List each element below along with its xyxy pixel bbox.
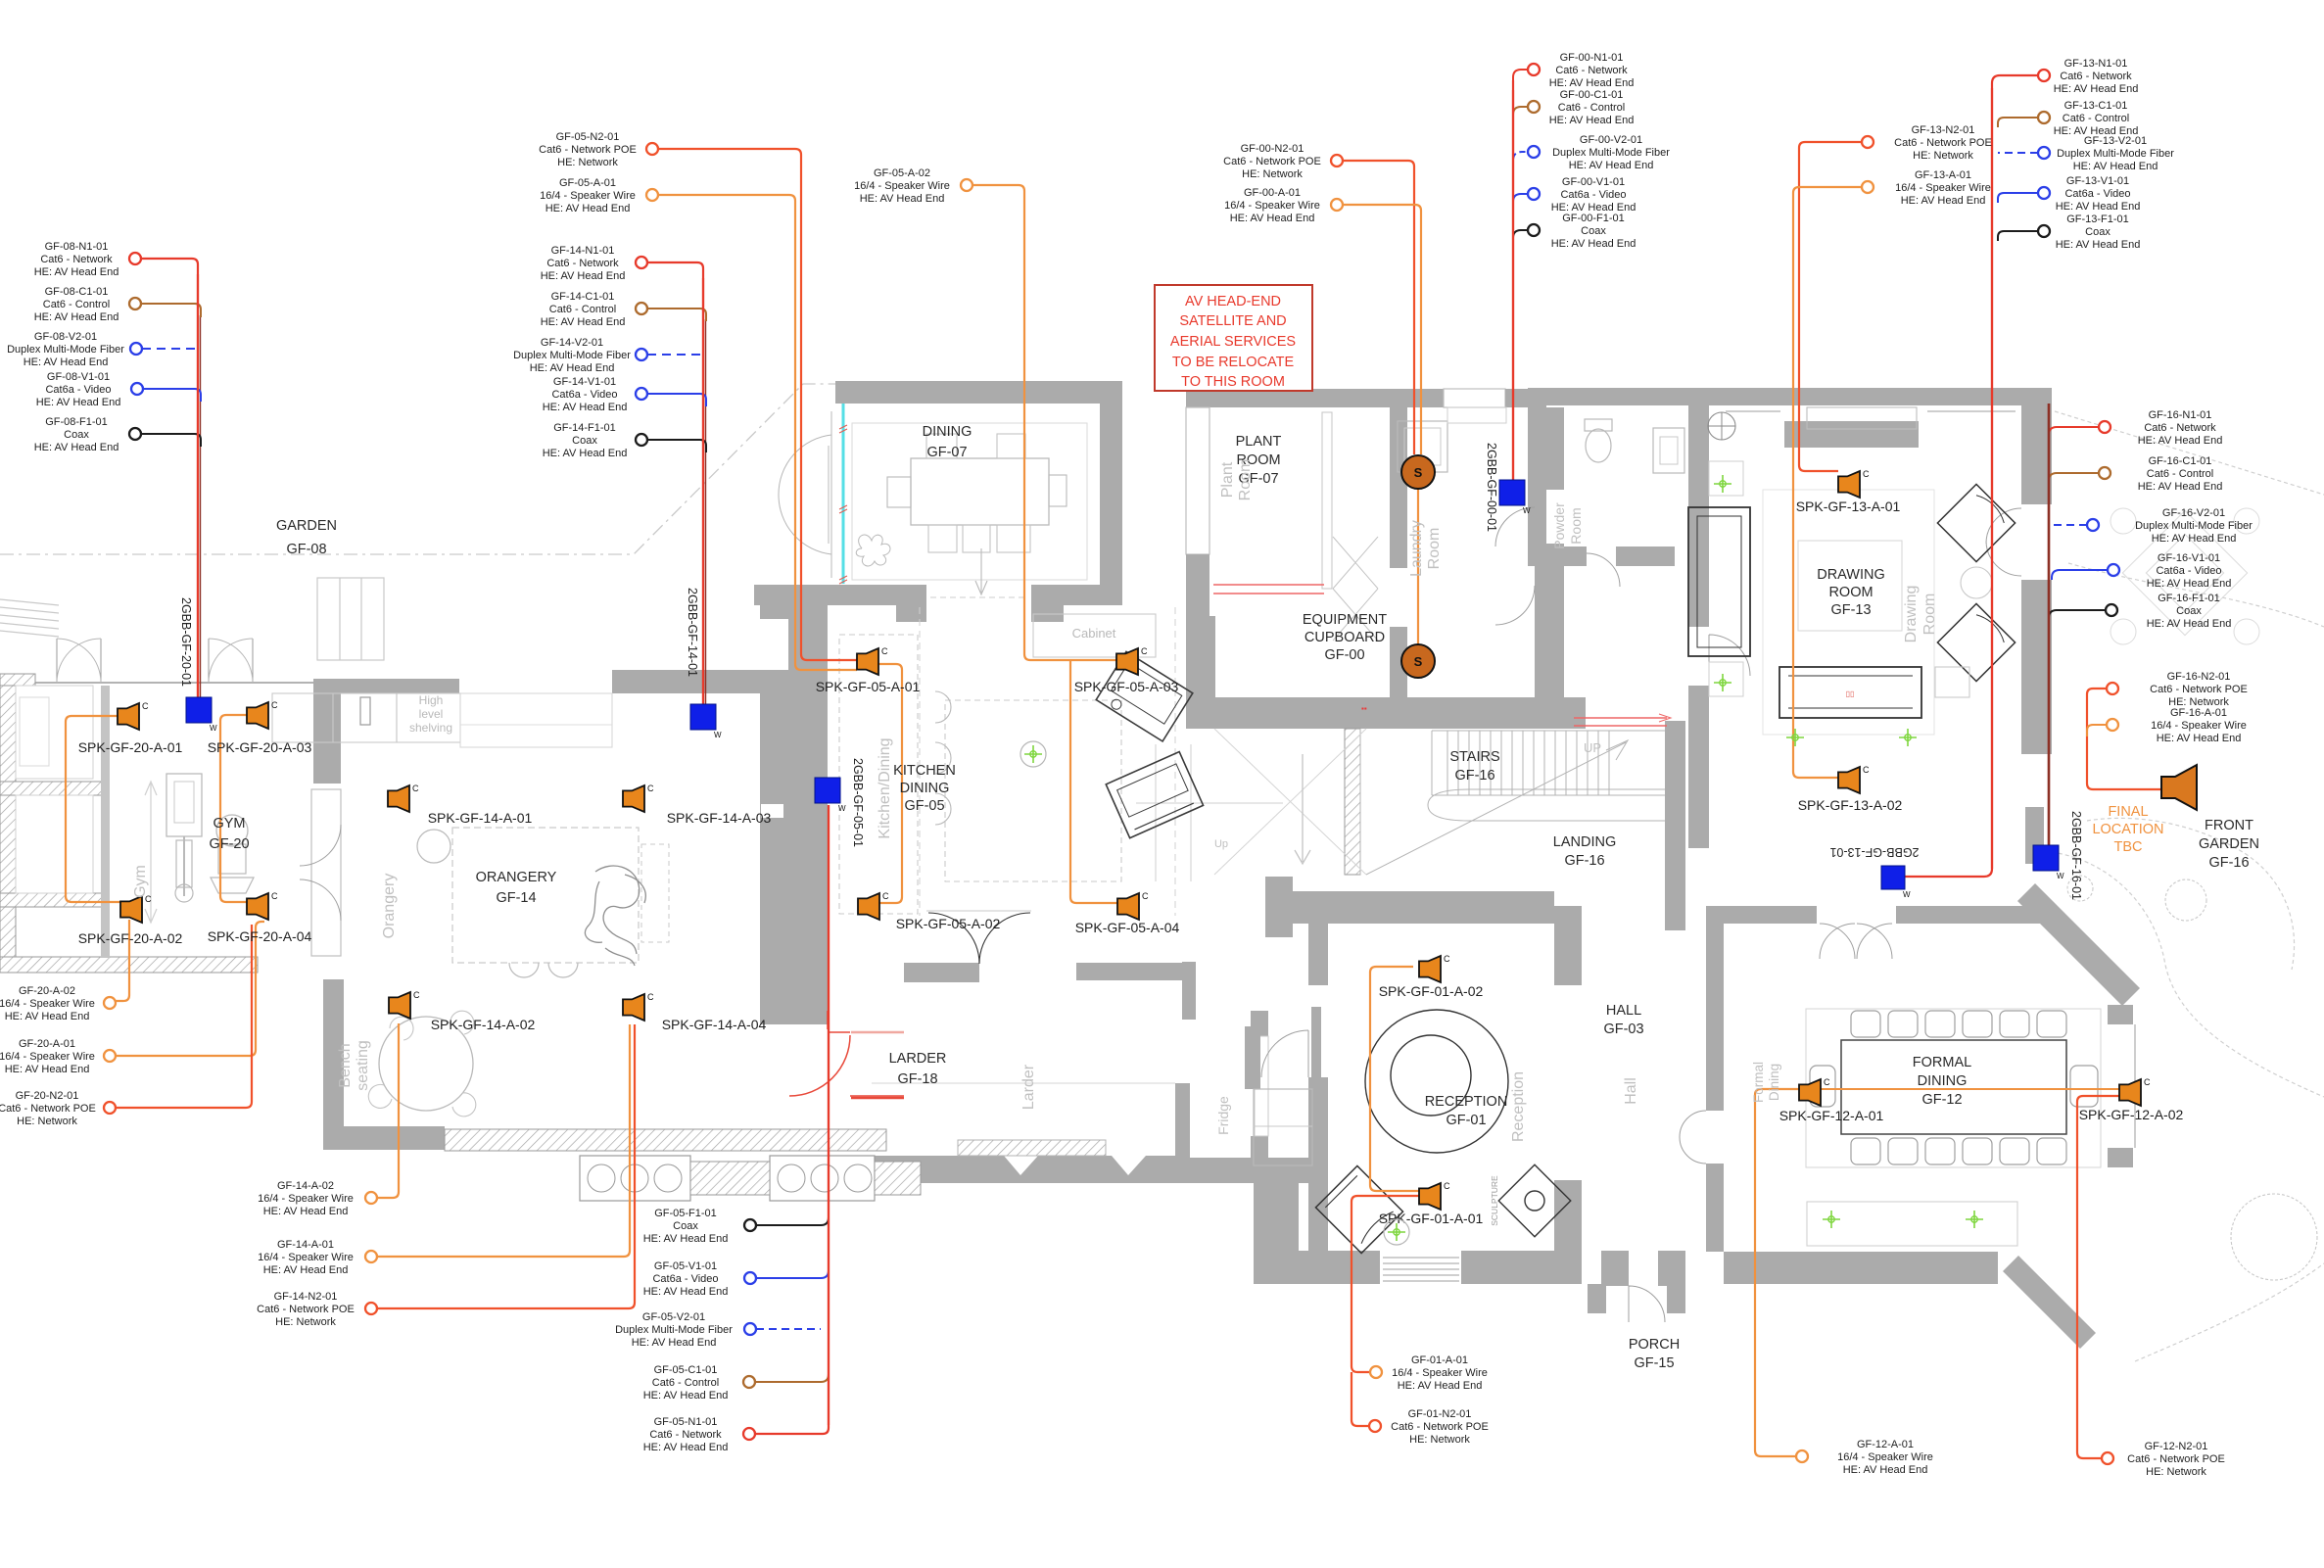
svg-text:HE: Network: HE: Network [1913,150,1973,162]
svg-text:GF-00-V2-01: GF-00-V2-01 [1580,134,1642,146]
svg-text:Cat6 - Control: Cat6 - Control [43,299,110,310]
svg-text:HE: AV Head End: HE: AV Head End [2138,435,2223,447]
svg-text:Cat6 - Network: Cat6 - Network [2060,71,2132,82]
svg-text:16/4 - Speaker Wire: 16/4 - Speaker Wire [1837,1451,1933,1463]
svg-text:W: W [210,724,217,733]
svg-text:HE: Network: HE: Network [275,1316,336,1328]
svg-text:GF-05-N2-01: GF-05-N2-01 [556,131,620,143]
svg-text:HE: AV Head End: HE: AV Head End [643,1286,729,1298]
svg-text:GF-18: GF-18 [897,1071,937,1087]
svg-text:C: C [1863,765,1870,775]
svg-text:Gym: Gym [132,865,149,898]
svg-text:level: level [419,707,444,721]
svg-text:PLANT: PLANT [1236,434,1282,450]
svg-text:GF-14-A-02: GF-14-A-02 [277,1180,334,1192]
svg-text:GF-12: GF-12 [1921,1092,1962,1108]
svg-text:HE: AV Head End: HE: AV Head End [541,270,626,282]
svg-text:SPK-GF-13-A-02: SPK-GF-13-A-02 [1798,797,1903,813]
svg-text:GF-08-V1-01: GF-08-V1-01 [47,371,110,383]
svg-text:GF-14: GF-14 [496,890,536,906]
svg-text:HE: Network: HE: Network [1242,168,1303,180]
svg-text:HE: AV Head End: HE: AV Head End [541,316,626,328]
svg-text:GF-05-A-02: GF-05-A-02 [874,167,930,179]
svg-text:16/4 - Speaker Wire: 16/4 - Speaker Wire [2151,720,2247,732]
svg-text:2GBB-GF-13-01: 2GBB-GF-13-01 [1829,845,1919,859]
svg-text:C: C [1824,1077,1830,1087]
svg-text:PORCH: PORCH [1629,1337,1680,1353]
svg-text:GF-14-A-01: GF-14-A-01 [277,1239,334,1251]
svg-text:16/4 - Speaker Wire: 16/4 - Speaker Wire [540,190,636,202]
svg-text:Duplex Multi-Mode Fiber: Duplex Multi-Mode Fiber [2135,520,2253,532]
svg-text:HE: Network: HE: Network [1409,1434,1470,1446]
svg-text:Laundry: Laundry [1408,520,1425,577]
svg-text:ROOM: ROOM [1828,585,1873,600]
svg-text:SPK-GF-05-A-03: SPK-GF-05-A-03 [1074,679,1179,694]
svg-text:W: W [838,804,846,813]
svg-text:GF-00-A-01: GF-00-A-01 [1244,187,1301,199]
svg-text:GF-03: GF-03 [1603,1022,1643,1037]
svg-text:shelving: shelving [409,721,452,735]
svg-text:GF-16-A-01: GF-16-A-01 [2170,707,2227,719]
svg-text:GF-20: GF-20 [209,836,249,852]
svg-text:GF-14-V1-01: GF-14-V1-01 [553,376,616,388]
svg-text:GF-13-N1-01: GF-13-N1-01 [2064,58,2128,70]
svg-text:SPK-GF-14-A-02: SPK-GF-14-A-02 [431,1017,536,1032]
svg-text:HE: AV Head End: HE: AV Head End [2147,618,2232,630]
svg-text:SPK-GF-01-A-01: SPK-GF-01-A-01 [1379,1211,1484,1226]
svg-text:GF-16-V1-01: GF-16-V1-01 [2158,552,2220,564]
svg-text:HE: AV Head End: HE: AV Head End [34,266,119,278]
svg-text:Bench: Bench [337,1043,354,1087]
svg-text:HE: AV Head End: HE: AV Head End [24,356,109,368]
svg-text:GF-16-C1-01: GF-16-C1-01 [2149,455,2212,467]
svg-text:GF-01: GF-01 [1446,1113,1486,1128]
svg-text:Cat6 - Network POE: Cat6 - Network POE [1894,137,1992,149]
svg-text:Coax: Coax [673,1220,698,1232]
svg-text:Coax: Coax [572,435,597,447]
svg-text:GF-14-C1-01: GF-14-C1-01 [551,291,615,303]
svg-text:16/4 - Speaker Wire: 16/4 - Speaker Wire [1895,182,1991,194]
svg-text:GF-13-V1-01: GF-13-V1-01 [2066,175,2129,187]
svg-text:KITCHEN: KITCHEN [893,763,956,779]
svg-text:GF-00-V1-01: GF-00-V1-01 [1562,176,1625,188]
svg-text:GF-13-C1-01: GF-13-C1-01 [2064,100,2128,112]
svg-text:S: S [1414,654,1423,669]
svg-text:Cat6 - Network POE: Cat6 - Network POE [539,144,637,156]
svg-text:C: C [1444,1181,1450,1191]
svg-text:Cat6a - Video: Cat6a - Video [2156,565,2221,577]
svg-text:16/4 - Speaker Wire: 16/4 - Speaker Wire [0,998,95,1010]
svg-text:HE: AV Head End: HE: AV Head End [263,1264,349,1276]
svg-text:2GBB-GF-05-01: 2GBB-GF-05-01 [851,758,865,847]
svg-text:HE: AV Head End: HE: AV Head End [36,397,121,408]
svg-text:GARDEN: GARDEN [276,518,337,534]
svg-text:HE: AV Head End: HE: AV Head End [2157,733,2242,744]
svg-text:HE: AV Head End: HE: AV Head End [263,1206,349,1217]
svg-text:SPK-GF-20-A-04: SPK-GF-20-A-04 [208,928,312,944]
svg-text:HE: AV Head End: HE: AV Head End [1569,160,1654,171]
svg-text:HE: AV Head End: HE: AV Head End [2054,83,2139,95]
svg-text:HE: AV Head End: HE: AV Head End [1843,1464,1928,1476]
svg-text:GF-20-A-02: GF-20-A-02 [19,985,75,997]
svg-text:Cat6 - Control: Cat6 - Control [2147,468,2213,480]
svg-text:GF-14-N2-01: GF-14-N2-01 [274,1291,338,1303]
svg-text:HE: AV Head End: HE: AV Head End [5,1064,90,1075]
svg-text:Cat6a - Video: Cat6a - Video [45,384,111,396]
svg-text:GF-05-V1-01: GF-05-V1-01 [654,1260,717,1272]
svg-text:GARDEN: GARDEN [2199,836,2259,852]
svg-text:EQUIPMENT: EQUIPMENT [1303,612,1387,628]
svg-text:Cat6 - Network POE: Cat6 - Network POE [2150,684,2248,695]
svg-text:GF-13: GF-13 [1830,602,1871,618]
svg-text:Powder: Powder [1551,502,1567,549]
svg-text:seating: seating [355,1040,371,1091]
svg-text:HE: AV Head End: HE: AV Head End [1551,238,1636,250]
svg-text:HE: AV Head End: HE: AV Head End [632,1337,717,1349]
svg-text:GF-05-A-01: GF-05-A-01 [559,177,616,189]
svg-text:HE: Network: HE: Network [2146,1466,2206,1478]
svg-text:16/4 - Speaker Wire: 16/4 - Speaker Wire [258,1193,354,1205]
svg-text:GF-20-A-01: GF-20-A-01 [19,1038,75,1050]
svg-text:GF-05-V2-01: GF-05-V2-01 [642,1311,705,1323]
svg-text:HE: AV Head End: HE: AV Head End [2147,578,2232,590]
svg-text:SPK-GF-05-A-01: SPK-GF-05-A-01 [816,679,921,694]
svg-text:GF-13-V2-01: GF-13-V2-01 [2084,135,2147,147]
svg-text:GF-12-A-01: GF-12-A-01 [1857,1439,1914,1450]
svg-text:SPK-GF-12-A-02: SPK-GF-12-A-02 [2079,1107,2184,1122]
svg-text:C: C [1142,891,1149,901]
svg-text:Duplex Multi-Mode Fiber: Duplex Multi-Mode Fiber [7,344,124,356]
svg-text:LANDING: LANDING [1553,834,1616,850]
svg-text:SPK-GF-14-A-04: SPK-GF-14-A-04 [662,1017,767,1032]
svg-text:Cat6 - Network POE: Cat6 - Network POE [1223,156,1321,167]
svg-text:FORMAL: FORMAL [1913,1055,1971,1070]
svg-text:Duplex Multi-Mode Fiber: Duplex Multi-Mode Fiber [1552,147,1670,159]
svg-text:Cat6 - Network POE: Cat6 - Network POE [1391,1421,1489,1433]
svg-text:Coax: Coax [2085,226,2111,238]
svg-text:Plant: Plant [1219,461,1236,498]
svg-text:GF-00: GF-00 [1324,647,1364,663]
svg-text:Fridge: Fridge [1215,1096,1231,1135]
svg-text:High: High [419,693,444,707]
svg-text:UP: UP [1584,740,1601,755]
svg-text:Cat6 - Control: Cat6 - Control [1558,102,1625,114]
svg-text:W: W [714,731,722,739]
svg-text:GF-13-N2-01: GF-13-N2-01 [1912,124,1975,136]
svg-text:Cat6 - Network POE: Cat6 - Network POE [2127,1453,2225,1465]
svg-text:C: C [1141,646,1148,656]
svg-text:HE: AV Head End: HE: AV Head End [530,362,615,374]
svg-text:GF-08-V2-01: GF-08-V2-01 [34,331,97,343]
svg-text:SPK-GF-13-A-01: SPK-GF-13-A-01 [1796,499,1901,514]
svg-text:SPK-GF-05-A-04: SPK-GF-05-A-04 [1075,920,1180,935]
svg-text:Cat6 - Network: Cat6 - Network [40,254,113,265]
svg-text:GF-08: GF-08 [286,542,326,557]
svg-text:HE: AV Head End: HE: AV Head End [643,1233,729,1245]
svg-text:C: C [412,784,419,793]
svg-text:C: C [1444,954,1450,964]
svg-text:HE: AV Head End: HE: AV Head End [643,1442,729,1453]
svg-text:SPK-GF-05-A-02: SPK-GF-05-A-02 [896,916,1001,931]
svg-text:Coax: Coax [2176,605,2202,617]
svg-text:LOCATION: LOCATION [2092,822,2163,837]
svg-text:Cabinet: Cabinet [1072,626,1116,641]
svg-text:Coax: Coax [64,429,89,441]
svg-text:16/4 - Speaker Wire: 16/4 - Speaker Wire [0,1051,95,1063]
svg-text:HE: AV Head End: HE: AV Head End [1549,77,1635,89]
svg-text:TBC: TBC [2114,839,2143,855]
svg-text:GF-08-C1-01: GF-08-C1-01 [45,286,109,298]
svg-text:FRONT: FRONT [2205,818,2253,833]
svg-text:GF-20-N2-01: GF-20-N2-01 [16,1090,79,1102]
svg-text:Cat6 - Control: Cat6 - Control [652,1377,719,1389]
svg-text:LARDER: LARDER [889,1051,947,1067]
svg-text:Room: Room [1237,459,1254,501]
svg-text:SPK-GF-20-A-01: SPK-GF-20-A-01 [78,739,183,755]
svg-text:SPK-GF-14-A-01: SPK-GF-14-A-01 [428,810,533,826]
svg-text:Cat6 - Network POE: Cat6 - Network POE [257,1304,355,1315]
svg-text:GF-16-V2-01: GF-16-V2-01 [2162,507,2225,519]
svg-text:DINING: DINING [923,424,972,440]
svg-text:Room: Room [1921,594,1938,636]
svg-text:▯▯: ▯▯ [1846,689,1855,698]
svg-text:HE: AV Head End: HE: AV Head End [2152,533,2237,545]
svg-text:HE: AV Head End: HE: AV Head End [860,193,945,205]
svg-text:W: W [1523,506,1531,515]
svg-text:HE: AV Head End: HE: AV Head End [543,448,628,459]
svg-text:▪▪: ▪▪ [1361,704,1367,713]
svg-text:Dining: Dining [1767,1064,1781,1101]
svg-text:SPK-GF-12-A-01: SPK-GF-12-A-01 [1779,1108,1884,1123]
svg-text:2GBB-GF-14-01: 2GBB-GF-14-01 [686,588,699,677]
svg-text:TO THIS ROOM: TO THIS ROOM [1181,374,1285,390]
svg-text:GF-01-A-01: GF-01-A-01 [1411,1354,1468,1366]
svg-text:Kitchen/Dining: Kitchen/Dining [877,737,893,838]
svg-text:FINAL: FINAL [2108,804,2148,820]
svg-text:HE: AV Head End: HE: AV Head End [2138,481,2223,493]
svg-text:16/4 - Speaker Wire: 16/4 - Speaker Wire [1392,1367,1488,1379]
svg-text:STAIRS: STAIRS [1449,749,1499,765]
svg-text:HE: AV Head End: HE: AV Head End [643,1390,729,1402]
svg-text:HE: AV Head End: HE: AV Head End [5,1011,90,1022]
svg-text:HE: AV Head End: HE: AV Head End [543,402,628,413]
svg-text:GF-12-N2-01: GF-12-N2-01 [2145,1441,2208,1452]
svg-text:GF-05-N1-01: GF-05-N1-01 [654,1416,718,1428]
svg-text:S: S [1414,465,1423,480]
svg-text:GF-16: GF-16 [1564,853,1604,869]
svg-text:2GBB-GF-00-01: 2GBB-GF-00-01 [1485,443,1498,532]
svg-text:GF-08-F1-01: GF-08-F1-01 [45,416,108,428]
svg-text:Cat6 - Control: Cat6 - Control [549,304,616,315]
svg-text:GF-05-F1-01: GF-05-F1-01 [654,1208,717,1219]
svg-text:GF-14-N1-01: GF-14-N1-01 [551,245,615,257]
svg-text:AERIAL SERVICES: AERIAL SERVICES [1170,334,1296,350]
svg-text:CUPBOARD: CUPBOARD [1304,630,1385,645]
svg-text:GF-16: GF-16 [1454,768,1494,784]
svg-text:DRAWING: DRAWING [1817,567,1885,583]
svg-text:SPK-GF-20-A-03: SPK-GF-20-A-03 [208,739,312,755]
svg-text:SPK-GF-14-A-03: SPK-GF-14-A-03 [667,810,772,826]
svg-text:GF-00-F1-01: GF-00-F1-01 [1562,213,1625,224]
svg-text:SPK-GF-20-A-02: SPK-GF-20-A-02 [78,930,183,946]
svg-text:Larder: Larder [1020,1064,1037,1110]
svg-text:DINING: DINING [900,781,950,796]
svg-text:Cat6a - Video: Cat6a - Video [652,1273,718,1285]
svg-text:SCULPTURE: SCULPTURE [1490,1175,1499,1226]
svg-text:Cat6 - Network POE: Cat6 - Network POE [0,1103,96,1115]
svg-text:HE: AV Head End: HE: AV Head End [2073,161,2158,172]
svg-text:HE: AV Head End: HE: AV Head End [2056,239,2141,251]
svg-text:HE: AV Head End: HE: AV Head End [34,311,119,323]
svg-text:ORANGERY: ORANGERY [476,870,557,885]
svg-text:C: C [881,646,888,656]
svg-text:C: C [271,891,278,901]
svg-text:GF-16: GF-16 [2208,855,2249,871]
svg-text:Cat6a - Video: Cat6a - Video [2064,188,2130,200]
svg-text:TO BE RELOCATE: TO BE RELOCATE [1172,355,1295,370]
svg-text:C: C [1863,469,1870,479]
svg-text:Room: Room [1426,528,1443,570]
svg-text:HE: AV Head End: HE: AV Head End [1230,213,1315,224]
svg-text:2GBB-GF-16-01: 2GBB-GF-16-01 [2069,811,2083,900]
svg-text:GF-05: GF-05 [904,798,944,814]
svg-text:16/4 - Speaker Wire: 16/4 - Speaker Wire [258,1252,354,1263]
svg-text:RECEPTION: RECEPTION [1425,1094,1508,1110]
svg-text:C: C [2144,1077,2151,1087]
svg-text:Cat6 - Network: Cat6 - Network [546,258,619,269]
svg-text:Up: Up [1214,838,1228,850]
svg-text:GF-15: GF-15 [1634,1355,1674,1371]
svg-text:W: W [1903,890,1911,899]
svg-text:Cat6 - Control: Cat6 - Control [2063,113,2129,124]
svg-text:DINING: DINING [1918,1073,1968,1089]
svg-text:AV HEAD-END: AV HEAD-END [1185,294,1281,309]
svg-text:Duplex Multi-Mode Fiber: Duplex Multi-Mode Fiber [615,1324,733,1336]
svg-text:HE: AV Head End: HE: AV Head End [545,203,631,214]
svg-text:GF-14-V2-01: GF-14-V2-01 [541,337,603,349]
svg-text:Drawing: Drawing [1903,586,1920,643]
svg-text:HE: Network: HE: Network [17,1116,77,1127]
svg-text:Hall: Hall [1623,1077,1639,1105]
svg-text:C: C [647,992,654,1002]
svg-text:HE: AV Head End: HE: AV Head End [1549,115,1635,126]
svg-text:GF-00-N1-01: GF-00-N1-01 [1560,52,1624,64]
svg-text:GF-00-N2-01: GF-00-N2-01 [1241,143,1304,155]
svg-text:Cat6a - Video: Cat6a - Video [1560,189,1626,201]
svg-text:GF-00-C1-01: GF-00-C1-01 [1560,89,1624,101]
svg-text:GF-16-N2-01: GF-16-N2-01 [2167,671,2231,683]
svg-text:HE: AV Head End: HE: AV Head End [34,442,119,453]
svg-text:16/4 - Speaker Wire: 16/4 - Speaker Wire [854,180,950,192]
svg-text:Room: Room [1568,507,1584,544]
svg-text:GF-07: GF-07 [926,445,967,460]
svg-text:Duplex Multi-Mode Fiber: Duplex Multi-Mode Fiber [2057,148,2174,160]
svg-text:GF-13-A-01: GF-13-A-01 [1915,169,1971,181]
svg-text:Cat6 - Network: Cat6 - Network [2144,422,2216,434]
svg-text:GF-08-N1-01: GF-08-N1-01 [45,241,109,253]
svg-text:GF-16-N1-01: GF-16-N1-01 [2149,409,2212,421]
svg-text:W: W [2057,872,2064,880]
svg-text:SPK-GF-01-A-02: SPK-GF-01-A-02 [1379,983,1484,999]
svg-text:GF-05-C1-01: GF-05-C1-01 [654,1364,718,1376]
svg-text:Duplex Multi-Mode Fiber: Duplex Multi-Mode Fiber [513,350,631,361]
svg-text:HE: AV Head End: HE: AV Head End [2056,201,2141,213]
svg-text:C: C [882,891,889,901]
svg-text:GYM: GYM [213,816,245,832]
svg-text:GF-14-F1-01: GF-14-F1-01 [553,422,616,434]
svg-text:Orangery: Orangery [381,874,398,939]
svg-text:HE: AV Head End: HE: AV Head End [1901,195,1986,207]
svg-text:GF-01-N2-01: GF-01-N2-01 [1408,1408,1472,1420]
svg-text:C: C [271,700,278,710]
svg-text:Cat6 - Network: Cat6 - Network [649,1429,722,1441]
svg-text:HE: AV Head End: HE: AV Head End [1398,1380,1483,1392]
svg-text:GF-13-F1-01: GF-13-F1-01 [2066,214,2129,225]
svg-text:C: C [647,784,654,793]
svg-text:GF-16-F1-01: GF-16-F1-01 [2158,593,2220,604]
svg-text:SATELLITE AND: SATELLITE AND [1179,313,1286,329]
svg-text:Coax: Coax [1581,225,1606,237]
svg-text:Cat6 - Network: Cat6 - Network [1555,65,1628,76]
svg-text:Cat6a - Video: Cat6a - Video [551,389,617,401]
svg-text:Formal: Formal [1751,1062,1766,1103]
svg-text:C: C [142,701,149,711]
svg-text:Reception: Reception [1510,1071,1527,1142]
svg-text:HALL: HALL [1606,1003,1641,1019]
svg-text:C: C [413,990,420,1000]
svg-text:2GBB-GF-20-01: 2GBB-GF-20-01 [179,597,193,687]
svg-text:HE: Network: HE: Network [557,157,618,168]
svg-text:16/4 - Speaker Wire: 16/4 - Speaker Wire [1224,200,1320,212]
